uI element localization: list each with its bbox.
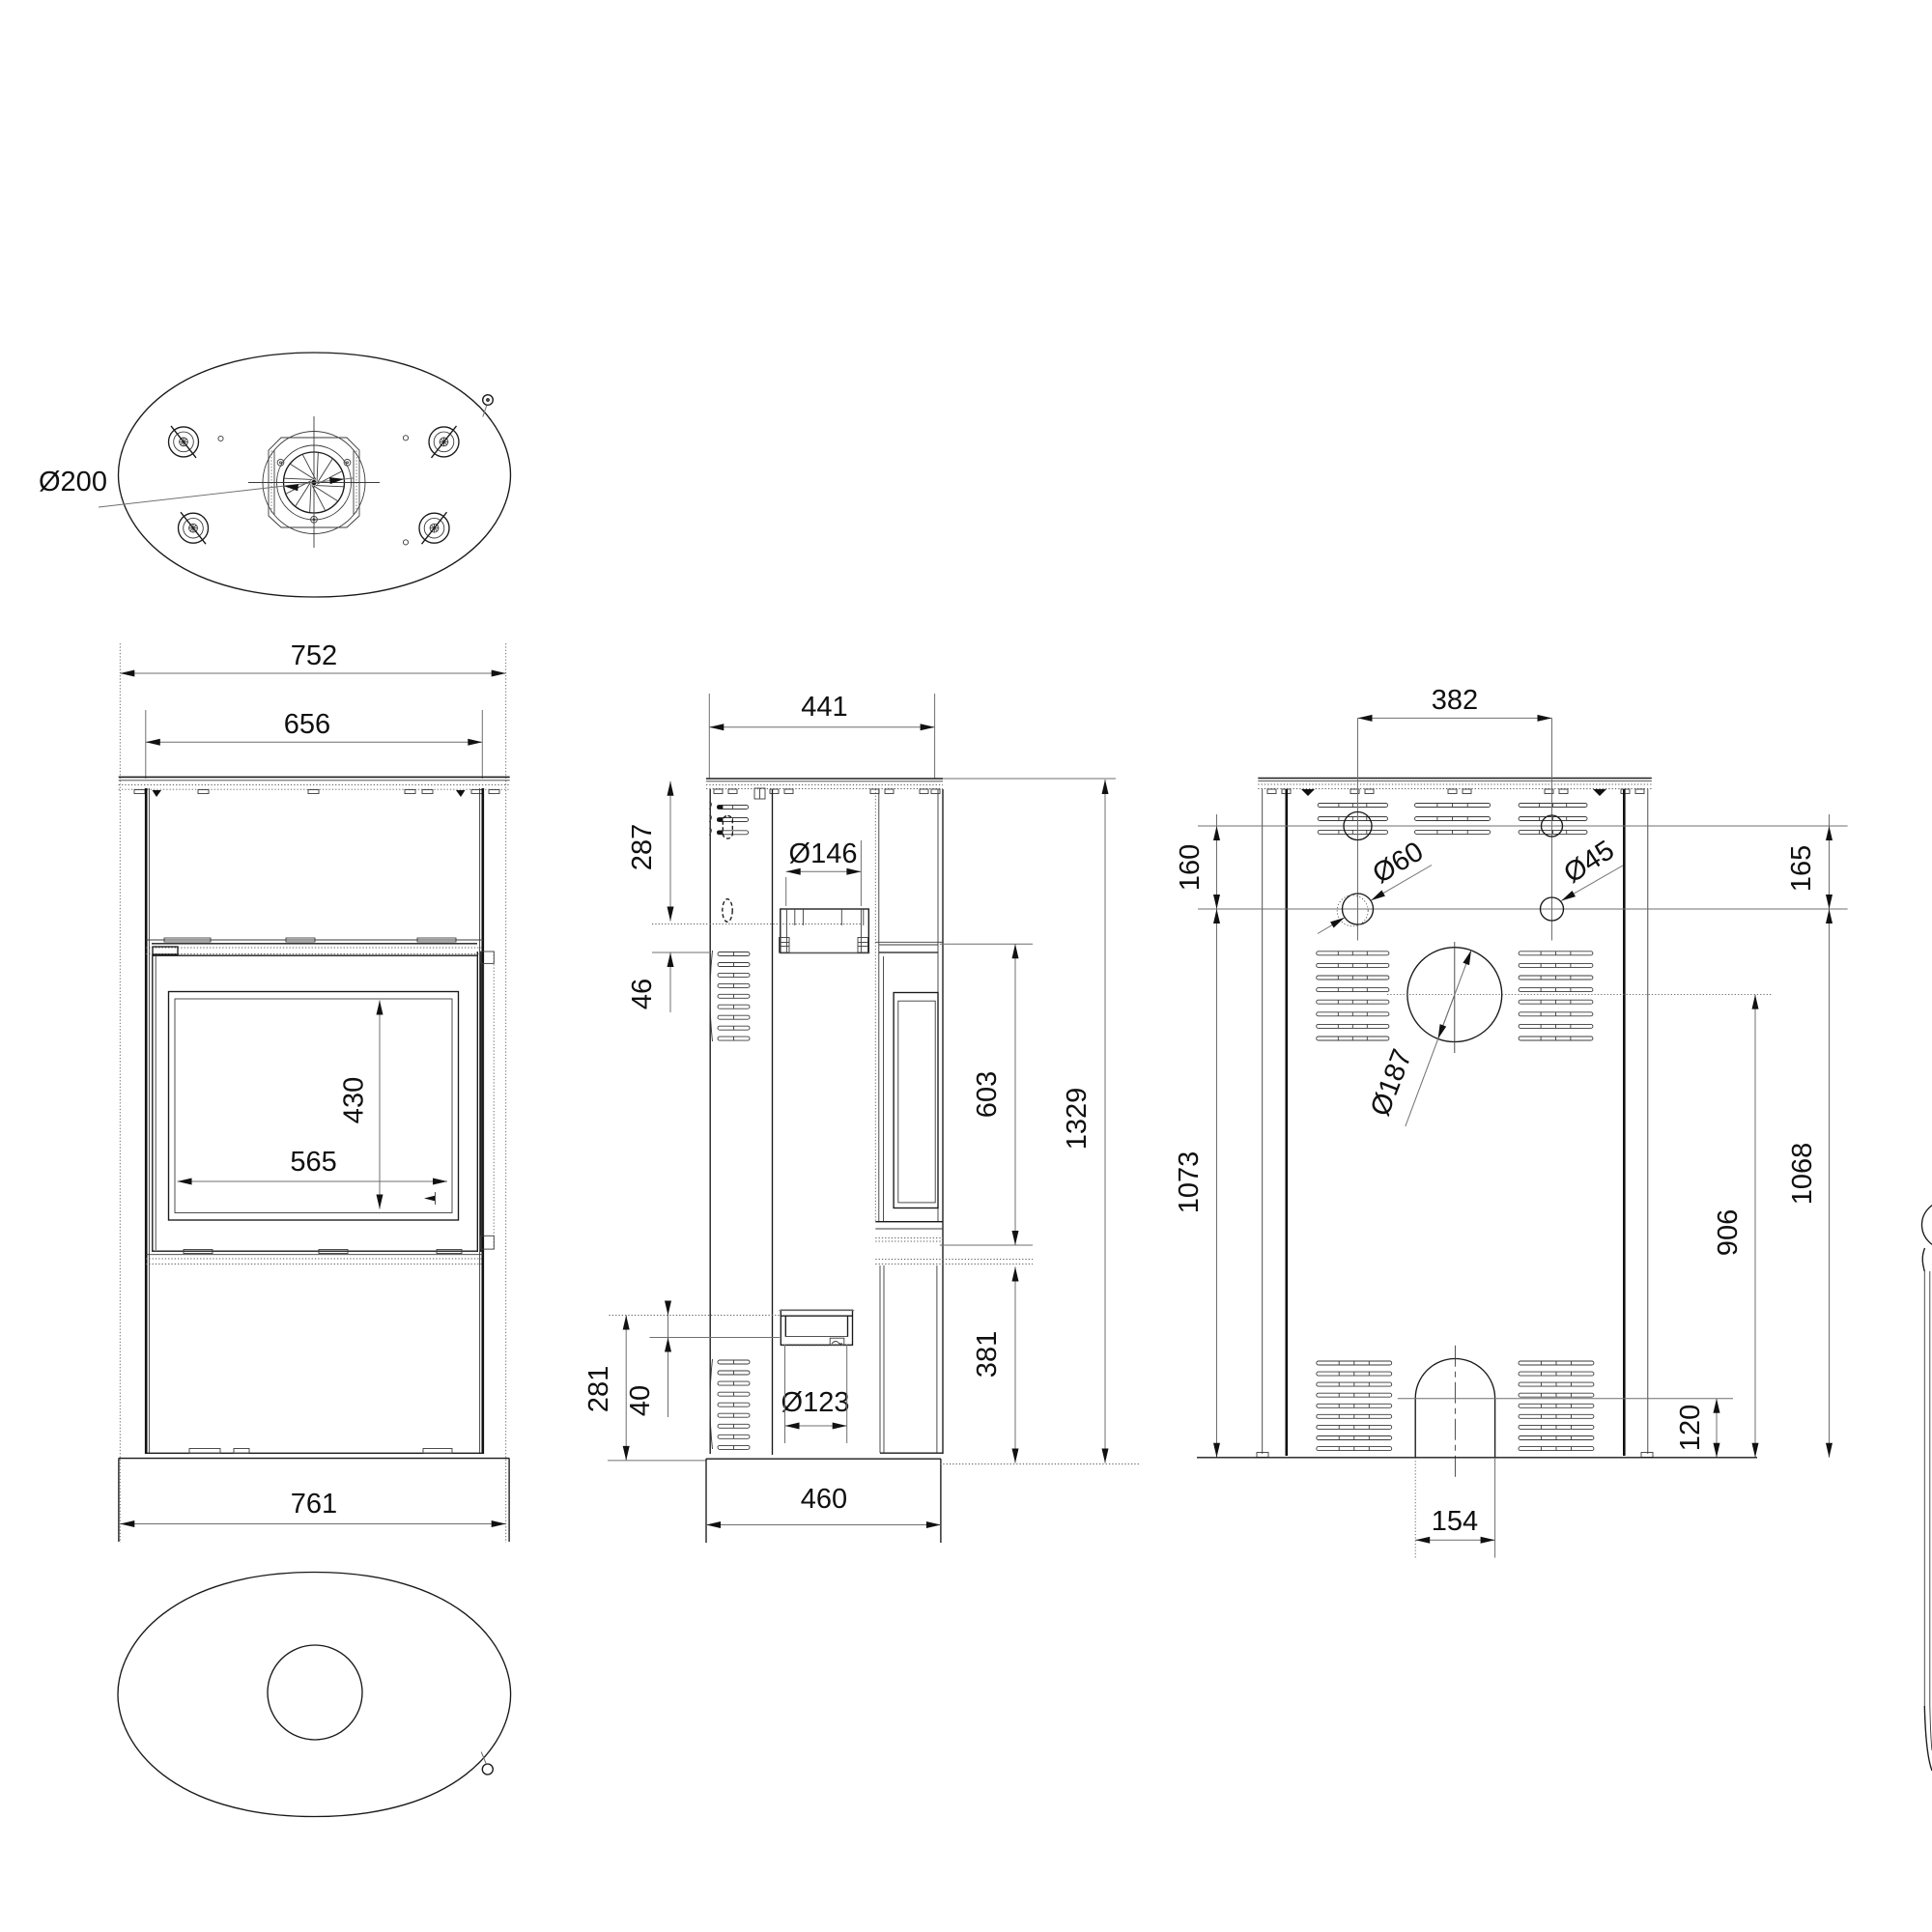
svg-text:761: 761	[291, 1489, 337, 1520]
svg-text:430: 430	[339, 1077, 370, 1123]
svg-text:460: 460	[801, 1484, 847, 1515]
svg-text:1073: 1073	[1174, 1151, 1205, 1214]
svg-text:287: 287	[627, 824, 658, 870]
svg-text:906: 906	[1713, 1209, 1744, 1256]
svg-text:752: 752	[291, 640, 337, 671]
svg-text:281: 281	[583, 1366, 614, 1412]
svg-text:154: 154	[1432, 1506, 1478, 1537]
svg-text:Ø123: Ø123	[781, 1387, 850, 1418]
svg-text:1068: 1068	[1787, 1143, 1818, 1206]
svg-text:565: 565	[290, 1147, 336, 1178]
svg-text:656: 656	[284, 709, 330, 740]
svg-text:165: 165	[1786, 845, 1817, 892]
svg-text:46: 46	[627, 979, 658, 1009]
svg-text:Ø146: Ø146	[789, 838, 858, 869]
svg-text:160: 160	[1175, 844, 1206, 891]
svg-text:441: 441	[801, 692, 847, 723]
svg-text:382: 382	[1432, 685, 1478, 716]
svg-text:1329: 1329	[1062, 1088, 1093, 1151]
svg-text:381: 381	[972, 1331, 1003, 1378]
svg-text:Ø200: Ø200	[39, 467, 107, 497]
svg-text:40: 40	[625, 1385, 656, 1416]
svg-text:120: 120	[1675, 1405, 1706, 1451]
svg-text:603: 603	[972, 1071, 1003, 1118]
